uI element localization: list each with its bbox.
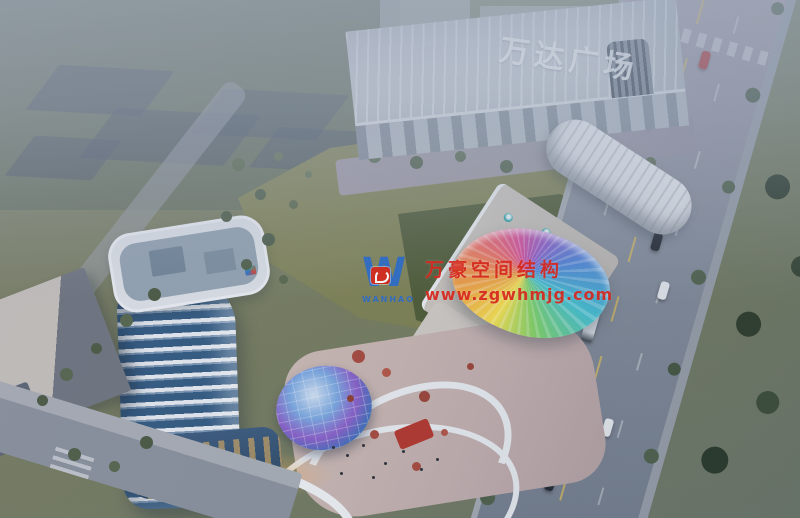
watermark: W WANHAO 万豪空间结构 www.zgwhmjg.com <box>362 254 613 304</box>
watermark-text: 万豪空间结构 www.zgwhmjg.com <box>425 255 613 304</box>
watermark-logo: W WANHAO <box>362 254 416 304</box>
aerial-rendering: 万达广场 W <box>0 0 800 518</box>
pedestrians <box>332 446 335 449</box>
watermark-website: www.zgwhmjg.com <box>425 285 613 304</box>
tree-cluster <box>148 288 161 301</box>
tree-cluster <box>232 158 245 171</box>
vehicle <box>650 232 664 252</box>
tower-roof-deck <box>117 225 260 304</box>
tree-row <box>770 1 786 17</box>
far-building <box>5 136 122 181</box>
watermark-company-name: 万豪空间结构 <box>425 255 613 282</box>
watermark-logo-seal <box>371 267 390 284</box>
far-building <box>25 65 174 116</box>
vehicle <box>657 281 671 301</box>
umbrella <box>502 211 514 223</box>
tower-brand-logo <box>244 265 256 276</box>
vehicle <box>698 50 712 70</box>
red-tree-cluster <box>352 350 365 363</box>
tower-roof-equipment <box>148 246 186 277</box>
watermark-logo-caption: WANHAO <box>362 295 415 304</box>
